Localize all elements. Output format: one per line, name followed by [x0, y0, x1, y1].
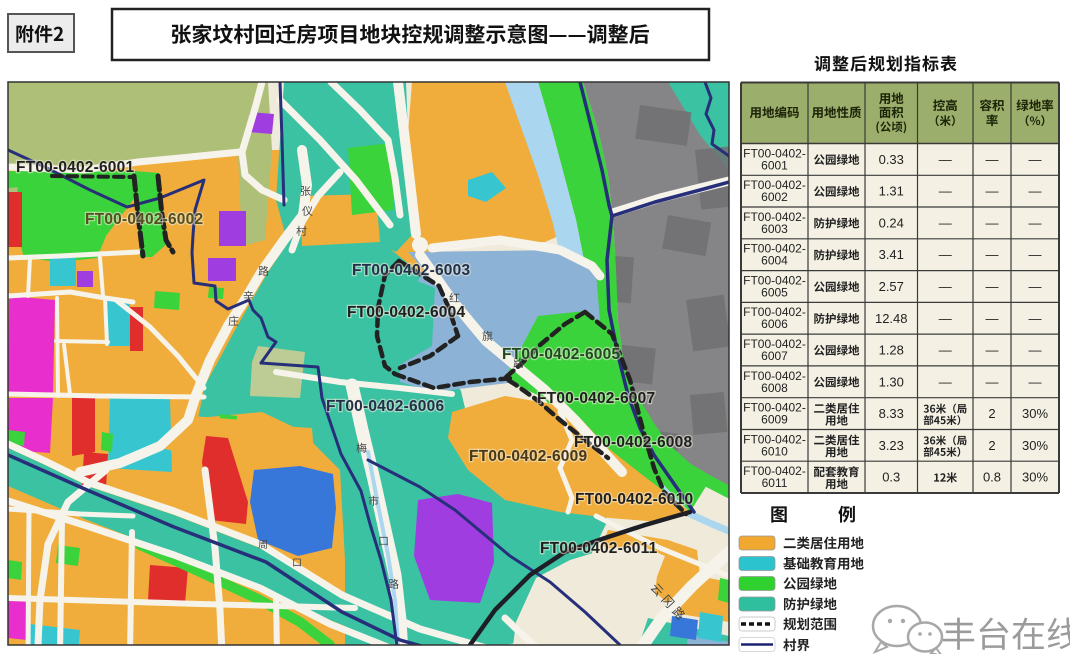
svg-text:6004: 6004 [761, 254, 788, 268]
svg-text:—: — [1029, 374, 1042, 389]
svg-text:6003: 6003 [761, 222, 788, 236]
svg-text:—: — [939, 184, 952, 199]
svg-text:6002: 6002 [761, 190, 788, 204]
svg-text:—: — [939, 311, 952, 326]
svg-text:0.8: 0.8 [983, 470, 1001, 485]
svg-text:—: — [939, 247, 952, 262]
svg-text:6005: 6005 [761, 286, 788, 300]
svg-text:—: — [986, 247, 999, 262]
svg-text:—: — [986, 152, 999, 167]
svg-text:2.57: 2.57 [879, 279, 904, 294]
svg-text:—: — [986, 311, 999, 326]
svg-text:—: — [986, 374, 999, 389]
svg-text:2: 2 [988, 438, 995, 453]
svg-text:—: — [986, 343, 999, 358]
svg-text:12.48: 12.48 [875, 311, 908, 326]
svg-text:8.33: 8.33 [879, 406, 904, 421]
svg-text:1.31: 1.31 [879, 184, 904, 199]
svg-text:6006: 6006 [761, 317, 788, 331]
svg-text:—: — [939, 279, 952, 294]
svg-text:1.30: 1.30 [879, 374, 904, 389]
svg-text:3.41: 3.41 [879, 247, 904, 262]
svg-text:—: — [1029, 152, 1042, 167]
svg-text:—: — [986, 184, 999, 199]
svg-text:—: — [939, 215, 952, 230]
svg-text:—: — [1029, 184, 1042, 199]
svg-text:—: — [1029, 279, 1042, 294]
svg-text:0.3: 0.3 [882, 470, 900, 485]
svg-text:6008: 6008 [761, 381, 788, 395]
svg-text:0.24: 0.24 [879, 215, 904, 230]
svg-text:30%: 30% [1022, 470, 1048, 485]
svg-text:6007: 6007 [761, 349, 788, 363]
svg-text:—: — [986, 279, 999, 294]
svg-text:6010: 6010 [761, 444, 788, 458]
svg-text:6009: 6009 [761, 413, 788, 427]
svg-text:—: — [1029, 215, 1042, 230]
svg-text:30%: 30% [1022, 438, 1048, 453]
svg-text:30%: 30% [1022, 406, 1048, 421]
svg-text:—: — [939, 374, 952, 389]
svg-text:—: — [939, 152, 952, 167]
svg-text:—: — [1029, 311, 1042, 326]
svg-text:1.28: 1.28 [879, 343, 904, 358]
svg-text:—: — [1029, 343, 1042, 358]
svg-text:2: 2 [988, 406, 995, 421]
svg-text:6011: 6011 [762, 476, 788, 490]
svg-text:—: — [986, 215, 999, 230]
svg-text:0.33: 0.33 [879, 152, 904, 167]
svg-text:6001: 6001 [761, 158, 788, 172]
svg-text:—: — [939, 343, 952, 358]
svg-text:—: — [1029, 247, 1042, 262]
svg-text:3.23: 3.23 [879, 438, 904, 453]
